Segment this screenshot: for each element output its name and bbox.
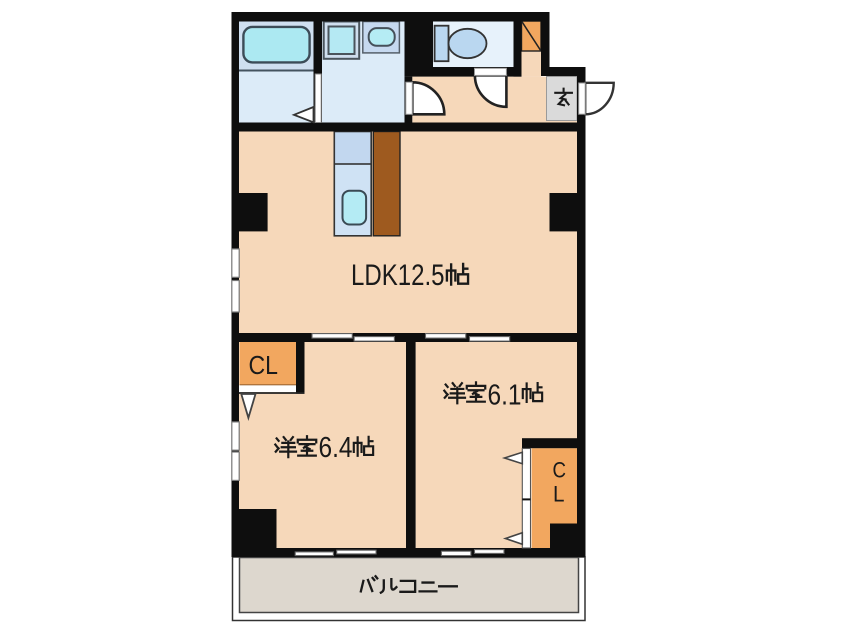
svg-text:LDK12.5: LDK12.5 xyxy=(351,259,445,292)
svg-text:6.1: 6.1 xyxy=(488,380,522,412)
svg-text:L: L xyxy=(553,482,565,507)
svg-text:C: C xyxy=(553,458,567,483)
svg-text:CL: CL xyxy=(249,350,279,380)
svg-text:6.4: 6.4 xyxy=(319,432,353,464)
